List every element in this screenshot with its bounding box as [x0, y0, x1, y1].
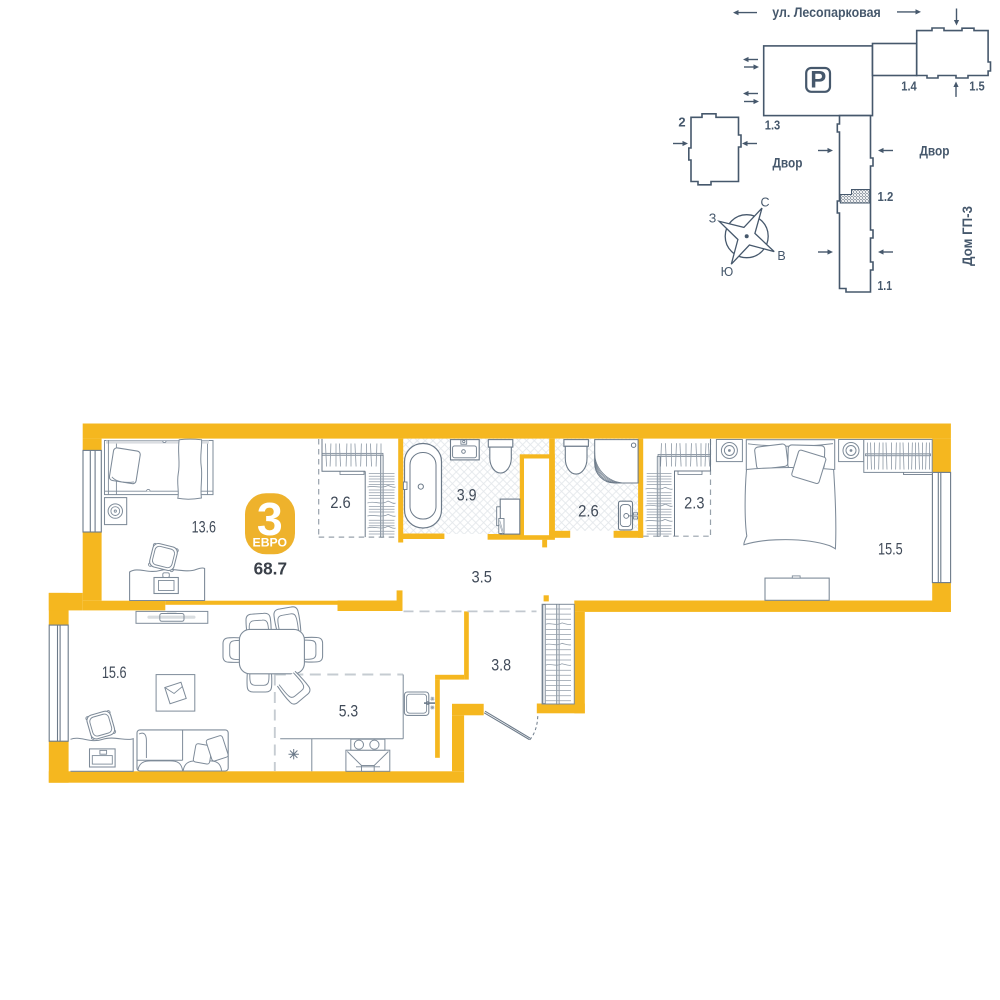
svg-text:5.3: 5.3 [339, 701, 358, 720]
svg-text:1.1: 1.1 [878, 279, 893, 293]
svg-text:2.3: 2.3 [684, 494, 704, 513]
svg-text:3.9: 3.9 [457, 485, 477, 504]
svg-text:15.6: 15.6 [102, 663, 127, 682]
svg-text:Двор: Двор [773, 156, 803, 171]
svg-text:13.6: 13.6 [192, 518, 216, 537]
svg-text:2.6: 2.6 [578, 502, 599, 521]
svg-text:3.5: 3.5 [472, 567, 492, 586]
svg-text:P: P [810, 67, 826, 94]
svg-text:Двор: Двор [920, 144, 950, 159]
svg-text:15.5: 15.5 [878, 539, 903, 558]
svg-text:2: 2 [678, 115, 685, 130]
svg-text:2.6: 2.6 [330, 493, 351, 512]
svg-text:1.3: 1.3 [765, 119, 781, 133]
svg-text:68.7: 68.7 [254, 559, 287, 579]
svg-text:З: З [709, 212, 717, 226]
svg-text:ЕВРО: ЕВРО [253, 535, 288, 549]
svg-text:1.2: 1.2 [878, 190, 894, 204]
svg-text:ул. Лесопарковая: ул. Лесопарковая [772, 4, 881, 20]
svg-text:1.5: 1.5 [969, 80, 985, 94]
svg-text:В: В [777, 249, 785, 263]
svg-text:1.4: 1.4 [901, 80, 917, 94]
svg-text:Ю: Ю [721, 265, 734, 279]
svg-text:Дом ГП-3: Дом ГП-3 [960, 206, 975, 266]
svg-text:3.8: 3.8 [491, 656, 511, 675]
svg-text:С: С [760, 196, 769, 210]
